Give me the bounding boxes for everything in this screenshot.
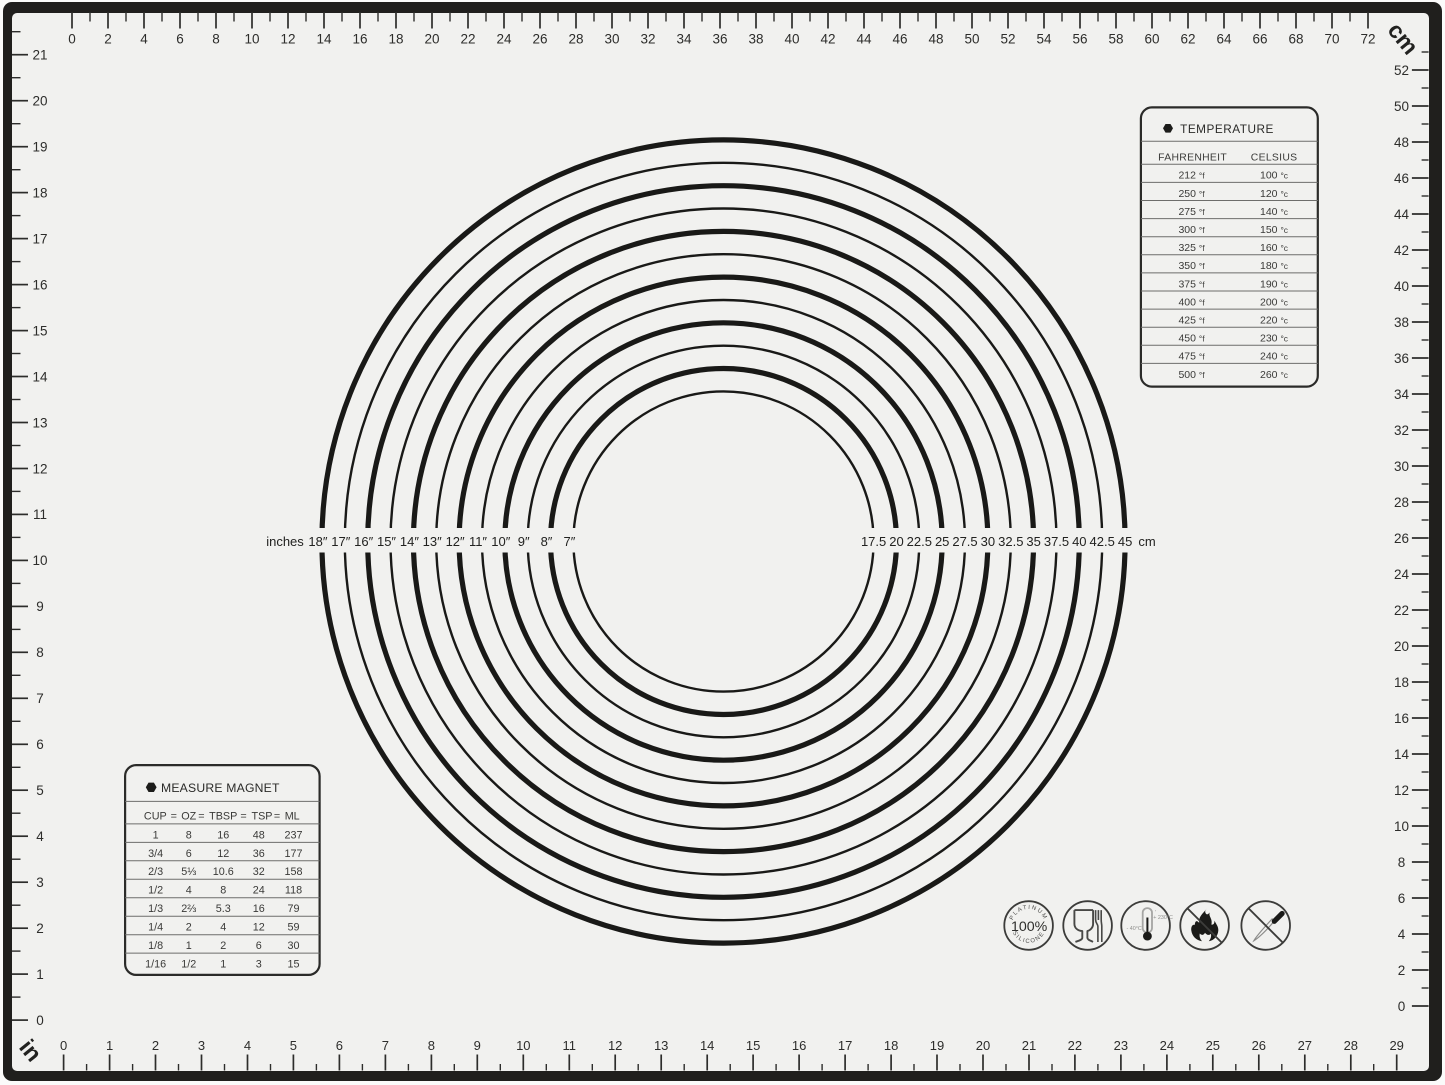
svg-text:14″: 14″ xyxy=(400,534,419,549)
svg-text:64: 64 xyxy=(1216,32,1232,47)
svg-text:36: 36 xyxy=(712,32,727,47)
svg-text:′: ′ xyxy=(1155,910,1156,916)
svg-text:3: 3 xyxy=(256,959,262,971)
svg-text:40: 40 xyxy=(1072,534,1086,549)
svg-text:cm: cm xyxy=(1138,534,1155,549)
svg-text:400 °f: 400 °f xyxy=(1178,296,1205,308)
svg-text:0: 0 xyxy=(60,1038,67,1053)
svg-text:475 °f: 475 °f xyxy=(1178,351,1205,363)
svg-text:20: 20 xyxy=(889,534,903,549)
svg-text:5: 5 xyxy=(290,1038,297,1053)
svg-text:32.5: 32.5 xyxy=(998,534,1023,549)
svg-text:1/8: 1/8 xyxy=(148,940,163,952)
svg-text:1: 1 xyxy=(36,967,44,982)
svg-text:100 °c: 100 °c xyxy=(1260,170,1288,182)
svg-text:7″: 7″ xyxy=(563,534,575,549)
svg-text:32: 32 xyxy=(640,32,655,47)
svg-text:52: 52 xyxy=(1394,63,1409,78)
svg-text:3: 3 xyxy=(198,1038,205,1053)
svg-text:1/16: 1/16 xyxy=(145,959,166,971)
svg-text:8: 8 xyxy=(212,32,220,47)
svg-text:48: 48 xyxy=(928,32,943,47)
svg-text:38: 38 xyxy=(748,32,763,47)
svg-text:300 °f: 300 °f xyxy=(1178,224,1205,236)
svg-text:6: 6 xyxy=(176,32,184,47)
svg-text:60: 60 xyxy=(1144,32,1159,47)
svg-text:158: 158 xyxy=(284,866,302,878)
svg-text:70: 70 xyxy=(1324,32,1339,47)
svg-text:14: 14 xyxy=(32,369,48,384)
svg-text:12: 12 xyxy=(32,461,47,476)
svg-text:1: 1 xyxy=(153,829,159,841)
svg-text:17.5: 17.5 xyxy=(861,534,886,549)
svg-text:12″: 12″ xyxy=(446,534,465,549)
svg-text:58: 58 xyxy=(1108,32,1123,47)
svg-text:1: 1 xyxy=(220,959,226,971)
svg-text:160 °c: 160 °c xyxy=(1260,242,1288,254)
svg-text:9″: 9″ xyxy=(518,534,530,549)
svg-text:in: in xyxy=(14,1034,47,1066)
svg-text:20: 20 xyxy=(32,94,47,109)
svg-text:2: 2 xyxy=(152,1038,159,1053)
svg-text:14: 14 xyxy=(700,1038,714,1053)
svg-text:18: 18 xyxy=(388,32,403,47)
svg-text:13: 13 xyxy=(32,415,47,430)
svg-text:17: 17 xyxy=(32,231,47,246)
svg-text:237: 237 xyxy=(284,829,302,841)
svg-text:- 40°C: - 40°C xyxy=(1126,926,1141,932)
svg-text:21: 21 xyxy=(1022,1038,1036,1053)
svg-text:12: 12 xyxy=(608,1038,622,1053)
svg-text:13″: 13″ xyxy=(423,534,442,549)
svg-text:1/2: 1/2 xyxy=(181,959,196,971)
svg-text:15: 15 xyxy=(746,1038,760,1053)
svg-text:MEASURE MAGNET: MEASURE MAGNET xyxy=(161,781,280,795)
svg-text:25: 25 xyxy=(1206,1038,1220,1053)
svg-text:15″: 15″ xyxy=(377,534,396,549)
svg-text:7: 7 xyxy=(36,691,44,706)
svg-text:16: 16 xyxy=(792,1038,806,1053)
svg-text:1: 1 xyxy=(106,1038,113,1053)
svg-text:=: = xyxy=(274,810,280,822)
svg-text:TBSP: TBSP xyxy=(209,810,237,822)
svg-text:17: 17 xyxy=(838,1038,852,1053)
svg-text:140 °c: 140 °c xyxy=(1260,206,1288,218)
svg-text:2: 2 xyxy=(220,940,226,952)
svg-text:4: 4 xyxy=(244,1038,251,1053)
svg-text:18: 18 xyxy=(1394,675,1409,690)
svg-text:32: 32 xyxy=(253,866,265,878)
svg-text:4: 4 xyxy=(36,829,44,844)
svg-text:8″: 8″ xyxy=(541,534,553,549)
svg-text:56: 56 xyxy=(1072,32,1087,47)
svg-text:=: = xyxy=(240,810,246,822)
svg-text:1/2: 1/2 xyxy=(148,885,163,897)
svg-text:44: 44 xyxy=(856,32,872,47)
svg-text:21: 21 xyxy=(32,48,47,63)
svg-text:1/3: 1/3 xyxy=(148,903,163,915)
svg-text:37.5: 37.5 xyxy=(1044,534,1069,549)
svg-text:2: 2 xyxy=(104,32,112,47)
svg-text:inches: inches xyxy=(266,534,304,549)
svg-text:6: 6 xyxy=(256,940,262,952)
svg-text:38: 38 xyxy=(1394,315,1409,330)
svg-text:44: 44 xyxy=(1394,207,1410,222)
svg-text:3/4: 3/4 xyxy=(148,848,163,860)
svg-text:260 °c: 260 °c xyxy=(1260,369,1288,381)
svg-text:TSP: TSP xyxy=(252,810,273,822)
svg-text:30: 30 xyxy=(287,940,299,952)
svg-text:42.5: 42.5 xyxy=(1090,534,1115,549)
svg-text:15: 15 xyxy=(32,323,47,338)
svg-text:10: 10 xyxy=(244,32,259,47)
svg-text:375 °f: 375 °f xyxy=(1178,278,1205,290)
svg-text:4: 4 xyxy=(1398,927,1406,942)
svg-text:26: 26 xyxy=(1394,531,1409,546)
svg-text:40: 40 xyxy=(1394,279,1409,294)
svg-text:4: 4 xyxy=(186,885,192,897)
svg-text:0: 0 xyxy=(36,1013,44,1028)
svg-text:30: 30 xyxy=(604,32,619,47)
svg-text:30: 30 xyxy=(981,534,995,549)
svg-text:6: 6 xyxy=(36,737,44,752)
svg-text:180 °c: 180 °c xyxy=(1260,260,1288,272)
svg-text:16″: 16″ xyxy=(354,534,373,549)
svg-text:68: 68 xyxy=(1288,32,1303,47)
svg-text:2⅔: 2⅔ xyxy=(181,903,196,915)
svg-text:50: 50 xyxy=(964,32,979,47)
svg-text:7: 7 xyxy=(382,1038,389,1053)
svg-text:40: 40 xyxy=(784,32,799,47)
svg-text:12: 12 xyxy=(1394,783,1409,798)
svg-text:12: 12 xyxy=(217,848,229,860)
svg-text:42: 42 xyxy=(1394,243,1409,258)
svg-text:TEMPERATURE: TEMPERATURE xyxy=(1180,122,1274,136)
svg-text:6: 6 xyxy=(336,1038,343,1053)
svg-text:18″: 18″ xyxy=(308,534,327,549)
svg-text:0: 0 xyxy=(1398,999,1406,1014)
svg-text:=: = xyxy=(171,810,177,822)
svg-text:45: 45 xyxy=(1118,534,1132,549)
svg-text:24: 24 xyxy=(496,32,512,47)
svg-text:118: 118 xyxy=(285,885,302,897)
svg-text:4: 4 xyxy=(220,922,226,934)
svg-text:8: 8 xyxy=(428,1038,435,1053)
svg-text:12: 12 xyxy=(280,32,295,47)
svg-text:4: 4 xyxy=(140,32,148,47)
svg-text:240 °c: 240 °c xyxy=(1260,351,1288,363)
svg-text:2: 2 xyxy=(1398,963,1406,978)
svg-text:11: 11 xyxy=(563,1038,577,1053)
svg-text:9: 9 xyxy=(474,1038,481,1053)
svg-text:5⅓: 5⅓ xyxy=(181,866,196,878)
svg-text:1/4: 1/4 xyxy=(148,922,163,934)
svg-text:177: 177 xyxy=(284,848,302,860)
svg-text:22.5: 22.5 xyxy=(907,534,932,549)
svg-text:0: 0 xyxy=(68,32,76,47)
svg-text:+ 230°C: + 230°C xyxy=(1153,915,1173,921)
svg-text:8: 8 xyxy=(36,645,44,660)
svg-text:250 °f: 250 °f xyxy=(1178,188,1205,200)
svg-text:325 °f: 325 °f xyxy=(1178,242,1205,254)
svg-text:120 °c: 120 °c xyxy=(1260,188,1288,200)
svg-text:425 °f: 425 °f xyxy=(1178,315,1205,327)
svg-text:62: 62 xyxy=(1180,32,1195,47)
svg-text:16: 16 xyxy=(1394,711,1409,726)
svg-text:30: 30 xyxy=(1394,459,1409,474)
svg-text:FAHRENHEIT: FAHRENHEIT xyxy=(1158,153,1227,164)
svg-text:8: 8 xyxy=(220,885,226,897)
svg-text:36: 36 xyxy=(1394,351,1409,366)
svg-text:48: 48 xyxy=(253,829,265,841)
svg-text:22: 22 xyxy=(460,32,475,47)
svg-text:2/3: 2/3 xyxy=(148,866,163,878)
svg-text:35: 35 xyxy=(1026,534,1040,549)
svg-text:19: 19 xyxy=(32,140,47,155)
svg-text:11: 11 xyxy=(33,507,47,522)
svg-text:24: 24 xyxy=(1160,1038,1174,1053)
svg-text:23: 23 xyxy=(1114,1038,1128,1053)
svg-text:CELSIUS: CELSIUS xyxy=(1251,153,1298,164)
svg-text:46: 46 xyxy=(892,32,907,47)
svg-text:34: 34 xyxy=(1394,387,1410,402)
svg-text:350 °f: 350 °f xyxy=(1178,260,1205,272)
svg-text:6: 6 xyxy=(1398,891,1406,906)
svg-text:5: 5 xyxy=(36,783,44,798)
svg-text:10.6: 10.6 xyxy=(213,866,234,878)
svg-text:48: 48 xyxy=(1394,135,1409,150)
svg-text:12: 12 xyxy=(253,922,265,934)
svg-text:8: 8 xyxy=(186,829,192,841)
svg-text:20: 20 xyxy=(424,32,439,47)
svg-text:11″: 11″ xyxy=(469,534,487,549)
svg-text:450 °f: 450 °f xyxy=(1178,333,1205,345)
svg-text:1: 1 xyxy=(186,940,192,952)
svg-text:OZ: OZ xyxy=(181,810,196,822)
svg-text:6: 6 xyxy=(186,848,192,860)
svg-text:26: 26 xyxy=(1252,1038,1266,1053)
svg-text:28: 28 xyxy=(568,32,583,47)
svg-text:275 °f: 275 °f xyxy=(1178,206,1205,218)
svg-text:59: 59 xyxy=(287,922,299,934)
svg-text:=: = xyxy=(198,810,204,822)
svg-text:3: 3 xyxy=(36,875,44,890)
svg-text:32: 32 xyxy=(1394,423,1409,438)
svg-text:50: 50 xyxy=(1394,99,1409,114)
svg-text:27: 27 xyxy=(1298,1038,1312,1053)
svg-text:66: 66 xyxy=(1252,32,1267,47)
svg-text:150 °c: 150 °c xyxy=(1260,224,1288,236)
svg-text:500 °f: 500 °f xyxy=(1178,369,1205,381)
svg-text:34: 34 xyxy=(676,32,692,47)
svg-text:24: 24 xyxy=(253,885,265,897)
svg-text:29: 29 xyxy=(1389,1038,1403,1053)
svg-text:10: 10 xyxy=(32,553,47,568)
svg-text:52: 52 xyxy=(1000,32,1015,47)
svg-text:200 °c: 200 °c xyxy=(1260,296,1288,308)
svg-text:100%: 100% xyxy=(1011,919,1048,935)
svg-text:26: 26 xyxy=(532,32,547,47)
svg-text:36: 36 xyxy=(253,848,265,860)
svg-text:27.5: 27.5 xyxy=(952,534,977,549)
svg-text:24: 24 xyxy=(1394,567,1410,582)
svg-text:28: 28 xyxy=(1344,1038,1358,1053)
svg-text:20: 20 xyxy=(976,1038,990,1053)
svg-text:13: 13 xyxy=(654,1038,668,1053)
svg-text:22: 22 xyxy=(1394,603,1409,618)
svg-text:72: 72 xyxy=(1360,32,1375,47)
svg-text:10: 10 xyxy=(516,1038,530,1053)
svg-text:16: 16 xyxy=(32,277,47,292)
svg-text:16: 16 xyxy=(217,829,229,841)
svg-text:79: 79 xyxy=(287,903,299,915)
svg-text:10: 10 xyxy=(1394,819,1409,834)
svg-text:ML: ML xyxy=(285,810,300,822)
svg-text:230 °c: 230 °c xyxy=(1260,333,1288,345)
svg-text:10″: 10″ xyxy=(491,534,510,549)
svg-text:25: 25 xyxy=(935,534,949,549)
svg-text:5.3: 5.3 xyxy=(216,903,231,915)
svg-text:14: 14 xyxy=(1394,747,1410,762)
svg-text:42: 42 xyxy=(820,32,835,47)
svg-text:19: 19 xyxy=(930,1038,944,1053)
svg-text:54: 54 xyxy=(1036,32,1052,47)
svg-text:190 °c: 190 °c xyxy=(1260,278,1288,290)
svg-text:16: 16 xyxy=(253,903,265,915)
svg-text:15: 15 xyxy=(287,959,299,971)
svg-text:28: 28 xyxy=(1394,495,1409,510)
svg-text:22: 22 xyxy=(1068,1038,1082,1053)
svg-text:CUP: CUP xyxy=(144,810,167,822)
svg-text:46: 46 xyxy=(1394,171,1409,186)
svg-text:16: 16 xyxy=(352,32,367,47)
svg-text:2: 2 xyxy=(186,922,192,934)
svg-text:cm: cm xyxy=(1383,17,1424,59)
svg-text:2: 2 xyxy=(36,921,44,936)
svg-text:18: 18 xyxy=(884,1038,898,1053)
svg-text:17″: 17″ xyxy=(331,534,350,549)
svg-text:18: 18 xyxy=(32,185,47,200)
svg-text:220 °c: 220 °c xyxy=(1260,315,1288,327)
svg-text:8: 8 xyxy=(1398,855,1406,870)
svg-text:9: 9 xyxy=(36,599,44,614)
svg-text:20: 20 xyxy=(1394,639,1409,654)
svg-text:212 °f: 212 °f xyxy=(1178,170,1205,182)
svg-text:14: 14 xyxy=(316,32,332,47)
